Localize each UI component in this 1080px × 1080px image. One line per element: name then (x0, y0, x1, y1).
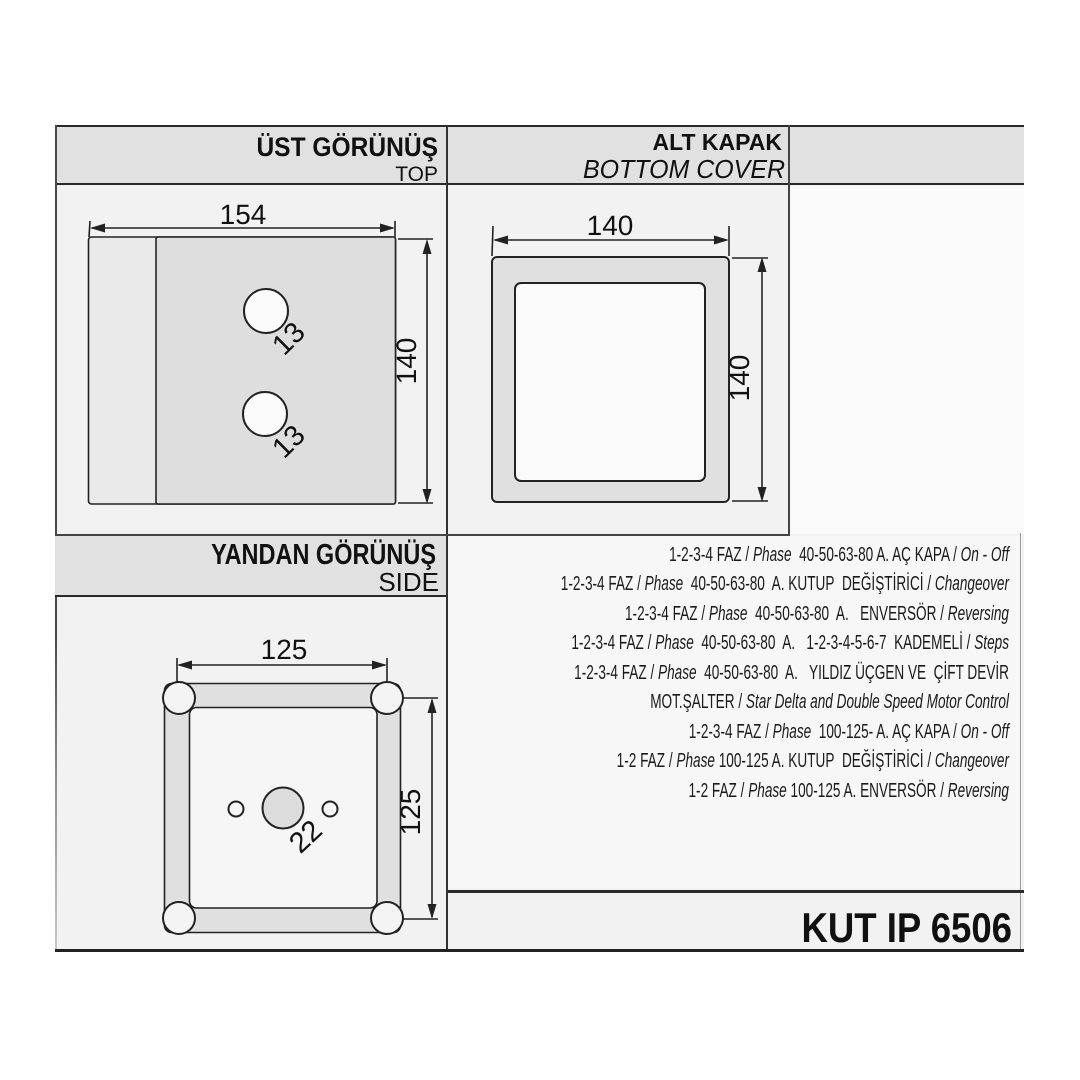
svg-text:140: 140 (724, 355, 755, 402)
svg-text:125: 125 (261, 634, 308, 665)
svg-text:140: 140 (587, 210, 634, 241)
svg-text:154: 154 (220, 199, 267, 230)
svg-text:125: 125 (395, 789, 426, 836)
svg-text:140: 140 (391, 338, 422, 385)
